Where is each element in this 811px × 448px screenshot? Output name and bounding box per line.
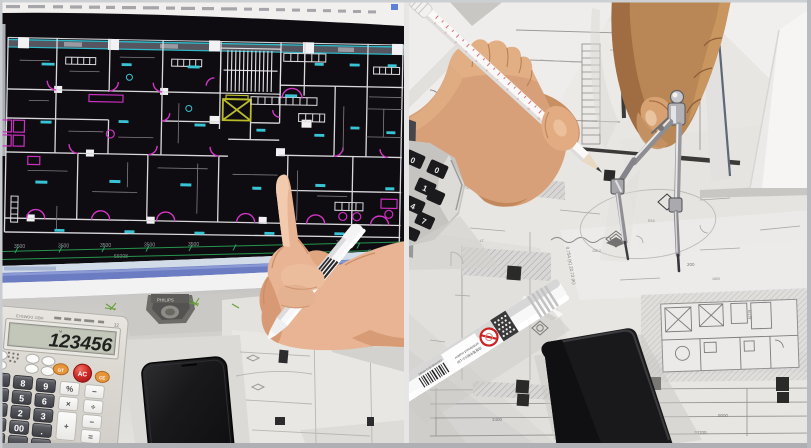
svg-text:GT: GT [57,368,64,374]
svg-text:CE: CE [99,375,106,381]
svg-text:R16: R16 [648,219,655,223]
svg-text:12: 12 [114,322,120,327]
svg-text:3500: 3500 [14,244,25,250]
svg-text:3: 3 [40,411,46,421]
svg-text:9000: 9000 [718,413,729,418]
svg-text:8: 8 [20,378,26,388]
svg-text:3400: 3400 [492,417,503,422]
svg-text:%: % [66,384,74,394]
svg-text:150.2: 150.2 [592,249,601,253]
svg-text:M: M [59,329,62,333]
svg-text:9: 9 [43,381,49,391]
svg-text:1800: 1800 [712,277,720,281]
svg-text:PHILIPS: PHILIPS [157,298,174,303]
svg-text:5: 5 [19,393,25,403]
svg-text:200: 200 [687,262,695,267]
svg-text:3500: 3500 [58,244,69,250]
svg-text:2: 2 [17,408,23,418]
svg-text:AC: AC [77,371,87,379]
svg-text:6: 6 [41,396,47,406]
svg-text:3500: 3500 [100,243,111,249]
svg-text:00: 00 [14,423,25,434]
